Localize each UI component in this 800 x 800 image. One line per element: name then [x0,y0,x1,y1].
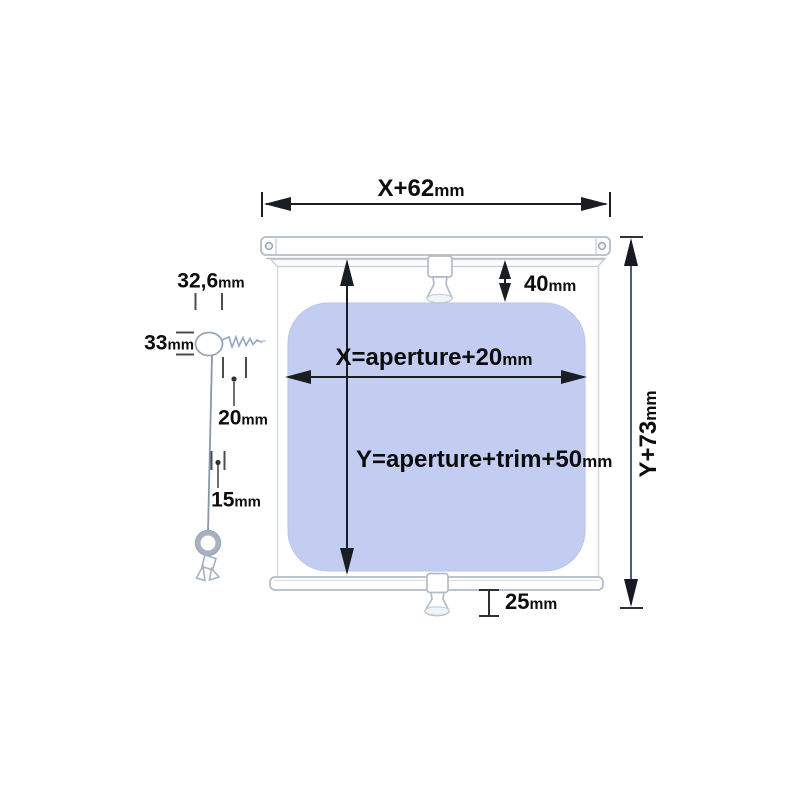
label-cord-gap-bottom-value: 15 [211,489,234,512]
measure-ticks-cord-gap-top [223,357,246,406]
label-cord-gap-top-value: 20 [218,407,241,430]
label-fabric-width-value: X=aperture+20 [335,344,502,371]
label-screw-eye-height: 33mm [144,333,194,354]
dimension-bottom-drop-bracket [479,590,499,616]
diagram-linework [0,0,800,800]
label-screw-eye-width-unit: mm [218,276,245,292]
label-fabric-height: Y=aperture+trim+50mm [356,448,612,472]
top-clip-cup-bottom [427,294,452,302]
point-dot-icon [231,376,236,381]
label-headrail-drop-value: 40 [524,271,548,296]
measure-ticks-screw-eye-width [196,293,223,310]
top-clip-stem [428,256,452,277]
label-fabric-height-value: Y=aperture+trim+50 [356,446,582,473]
label-screw-eye-height-value: 33 [144,332,167,355]
headrail-body [261,237,610,255]
arrowhead-up-icon [624,238,638,266]
arrowhead-right-icon [581,197,608,211]
cord-pull [195,530,220,580]
label-cord-gap-top: 20mm [218,408,268,429]
bottom-knob-stem [427,574,448,593]
label-bottom-drop: 25mm [505,591,557,613]
label-screw-eye-width-value: 32,6 [177,270,218,293]
label-fabric-width: X=aperture+20mm [335,346,532,370]
arrowhead-down-icon [499,283,511,302]
arrowhead-left-icon [264,197,291,211]
label-screw-eye-height-unit: mm [167,338,194,354]
label-total-width-value: X+62 [377,175,434,202]
label-total-height-value: Y+73 [635,421,662,478]
label-fabric-width-unit: mm [502,350,532,369]
screw-hole-right-icon [599,243,606,250]
label-total-height: Y+73mm [637,390,661,477]
label-fabric-height-unit: mm [582,452,612,471]
top-clip [427,256,452,303]
label-headrail-drop-unit: mm [548,278,576,295]
cleat-foot-right [210,569,220,581]
label-headrail-drop: 40mm [524,273,576,295]
bottom-knob [425,574,449,616]
label-cord-gap-top-unit: mm [241,413,268,429]
bottom-knob-cup-bottom [425,607,449,615]
label-total-height-unit: mm [641,390,660,420]
screw-tip [257,341,266,342]
screw-eye-ring [196,333,223,356]
label-screw-eye-width: 32,6mm [177,271,244,292]
arrowhead-down-icon [624,579,638,607]
screw-eye [196,333,267,356]
label-bottom-drop-value: 25 [505,589,529,614]
pull-ring-icon [198,533,218,553]
label-cord-gap-bottom-unit: mm [234,495,261,511]
label-total-width: X+62mm [377,177,464,201]
label-bottom-drop-unit: mm [529,596,557,613]
roller-blind-dimension-diagram: X+62mm 40mm X=aperture+20mm Y=aperture+t… [0,0,800,800]
label-total-width-unit: mm [434,181,464,200]
point-dot-icon [215,460,220,465]
label-cord-gap-bottom: 15mm [211,490,261,511]
measure-ticks-cord-gap-bottom [212,451,225,488]
cleat-body [202,555,216,570]
screw-hole-left-icon [266,243,273,250]
cleat-foot-left [197,566,206,581]
screw-thread-icon [222,337,262,347]
